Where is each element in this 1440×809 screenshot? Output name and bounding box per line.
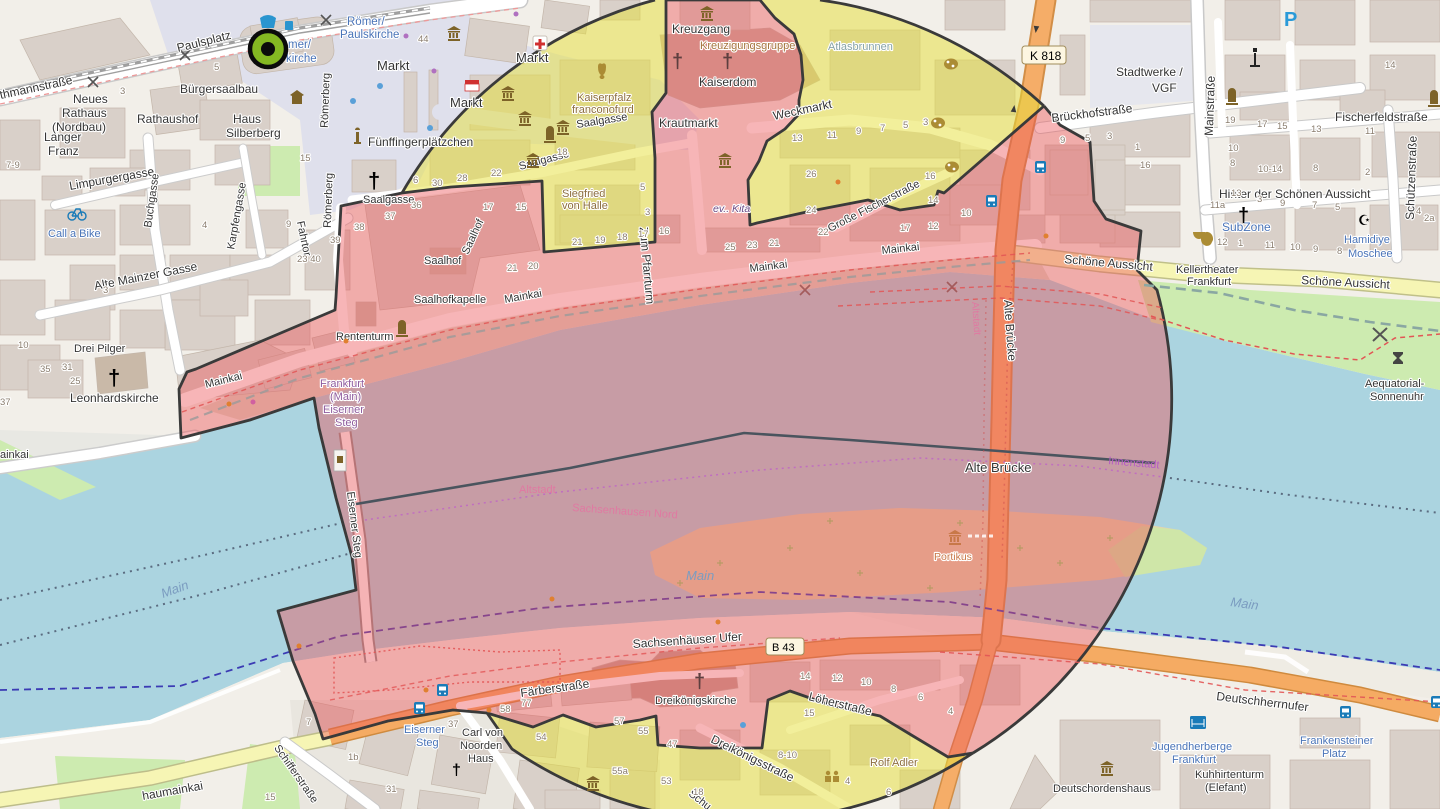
svg-text:20: 20	[528, 261, 539, 272]
svg-text:Römerberg: Römerberg	[322, 173, 336, 228]
svg-text:31: 31	[62, 362, 73, 373]
svg-text:2a: 2a	[1424, 213, 1435, 224]
svg-text:Markt: Markt	[516, 50, 549, 65]
svg-text:36: 36	[411, 200, 422, 211]
svg-text:Römerberg: Römerberg	[319, 73, 333, 128]
svg-text:3: 3	[120, 86, 125, 97]
svg-text:57: 57	[614, 716, 625, 727]
svg-text:Rathaushof: Rathaushof	[137, 112, 199, 126]
svg-text:12: 12	[1217, 237, 1228, 248]
svg-text:8: 8	[1337, 246, 1342, 257]
svg-text:15: 15	[516, 202, 527, 213]
svg-text:3: 3	[1257, 194, 1262, 205]
svg-text:franconofurd: franconofurd	[572, 104, 634, 116]
svg-text:58: 58	[500, 704, 511, 715]
svg-text:Leonhardskirche: Leonhardskirche	[70, 391, 159, 405]
svg-text:10: 10	[861, 677, 872, 688]
svg-text:Markt: Markt	[377, 58, 410, 73]
svg-text:12: 12	[832, 673, 843, 684]
svg-text:10: 10	[1290, 242, 1301, 253]
svg-text:†: †	[694, 671, 705, 693]
svg-text:17: 17	[638, 229, 649, 240]
svg-text:30: 30	[432, 178, 443, 189]
svg-text:3: 3	[923, 117, 928, 128]
svg-text:(Main): (Main)	[330, 391, 361, 403]
svg-text:5: 5	[1085, 133, 1090, 144]
svg-text:19: 19	[1225, 115, 1236, 126]
svg-text:7: 7	[880, 123, 885, 134]
svg-text:Kuhhirtenturm: Kuhhirtenturm	[1195, 769, 1264, 781]
svg-text:6: 6	[918, 692, 923, 703]
svg-text:47: 47	[667, 739, 678, 750]
svg-text:P: P	[1284, 9, 1297, 31]
svg-text:38: 38	[354, 222, 365, 233]
svg-text:26: 26	[806, 169, 817, 180]
svg-text:Frankensteiner: Frankensteiner	[1300, 735, 1374, 747]
svg-text:B 43: B 43	[772, 642, 795, 654]
svg-text:Langer: Langer	[44, 130, 81, 144]
svg-text:Aequatorial-: Aequatorial-	[1365, 378, 1425, 390]
svg-text:3: 3	[1107, 131, 1112, 142]
svg-text:Haus: Haus	[233, 112, 261, 126]
svg-text:35: 35	[40, 364, 51, 375]
svg-text:1: 1	[1135, 142, 1140, 153]
svg-text:K 818: K 818	[1030, 49, 1062, 63]
svg-text:18: 18	[693, 787, 704, 798]
svg-text:(Elefant): (Elefant)	[1205, 782, 1247, 794]
svg-text:23 40: 23 40	[297, 254, 321, 265]
svg-text:16: 16	[659, 226, 670, 237]
svg-text:23: 23	[747, 240, 758, 251]
svg-text:6: 6	[413, 175, 418, 186]
svg-text:8-10: 8-10	[778, 750, 797, 761]
svg-text:Saalhof: Saalhof	[424, 255, 462, 267]
svg-text:Kaiserdom: Kaiserdom	[699, 75, 756, 89]
svg-text:19: 19	[595, 235, 606, 246]
svg-text:17: 17	[900, 223, 911, 234]
svg-text:28: 28	[457, 173, 468, 184]
svg-text:Bürgersaalbau: Bürgersaalbau	[180, 82, 258, 96]
svg-text:Moschee: Moschee	[1348, 248, 1393, 260]
svg-text:Sonnenuhr: Sonnenuhr	[1370, 391, 1424, 403]
svg-text:10: 10	[18, 340, 29, 351]
svg-text:Platz: Platz	[1322, 748, 1346, 760]
svg-text:†: †	[1238, 205, 1249, 227]
svg-text:17: 17	[1257, 119, 1268, 130]
svg-text:54: 54	[536, 732, 547, 743]
svg-text:†: †	[452, 762, 461, 779]
svg-text:17: 17	[483, 202, 494, 213]
svg-text:37: 37	[0, 397, 11, 408]
svg-text:18: 18	[617, 232, 628, 243]
svg-text:4: 4	[1416, 206, 1421, 217]
svg-text:Kellertheater: Kellertheater	[1176, 264, 1239, 276]
svg-text:2: 2	[1365, 167, 1370, 178]
svg-text:Markt: Markt	[450, 95, 483, 110]
svg-text:Eiserner: Eiserner	[404, 724, 445, 736]
svg-text:8: 8	[1313, 163, 1318, 174]
svg-text:Silberberg: Silberberg	[226, 126, 281, 140]
svg-text:☪: ☪	[1358, 212, 1371, 228]
svg-text:9: 9	[1280, 198, 1285, 209]
svg-text:Noorden: Noorden	[460, 740, 502, 752]
svg-text:Fischerfeldstraße: Fischerfeldstraße	[1335, 110, 1428, 124]
svg-text:kirche: kirche	[286, 53, 317, 65]
svg-text:9: 9	[1313, 244, 1318, 255]
svg-text:37: 37	[448, 719, 459, 730]
svg-text:37: 37	[385, 211, 396, 222]
svg-text:24: 24	[806, 205, 817, 216]
svg-text:Deutschordenshaus: Deutschordenshaus	[1053, 783, 1151, 795]
svg-text:15: 15	[1277, 121, 1288, 132]
svg-text:9: 9	[1060, 135, 1065, 146]
svg-text:9: 9	[856, 126, 861, 137]
svg-text:VGF: VGF	[1152, 81, 1177, 95]
svg-text:8: 8	[1230, 158, 1235, 169]
svg-text:9: 9	[286, 219, 291, 230]
svg-text:55: 55	[638, 726, 649, 737]
svg-text:Neues: Neues	[73, 92, 108, 106]
svg-text:5: 5	[903, 120, 908, 131]
svg-text:14: 14	[1385, 60, 1396, 71]
svg-text:11a: 11a	[1210, 200, 1226, 211]
svg-text:13: 13	[1231, 188, 1242, 199]
svg-text:ev.. Kita: ev.. Kita	[713, 203, 750, 215]
svg-text:Frankfurt: Frankfurt	[320, 378, 364, 390]
svg-text:Stadtwerke /: Stadtwerke /	[1116, 65, 1183, 79]
svg-text:4: 4	[202, 220, 207, 231]
svg-text:Call a Bike: Call a Bike	[48, 228, 101, 240]
svg-text:25: 25	[70, 376, 81, 387]
svg-text:5: 5	[640, 182, 645, 193]
svg-text:Frankfurt: Frankfurt	[1172, 754, 1216, 766]
svg-text:1b: 1b	[348, 752, 359, 763]
svg-text:12: 12	[928, 221, 939, 232]
svg-text:Paulskirche: Paulskirche	[340, 29, 399, 41]
svg-text:Rolf Adler: Rolf Adler	[870, 757, 918, 769]
svg-text:18: 18	[557, 147, 568, 158]
svg-text:16: 16	[925, 171, 936, 182]
svg-text:Drei Pilger: Drei Pilger	[74, 343, 126, 355]
svg-text:10: 10	[961, 208, 972, 219]
svg-text:53: 53	[661, 776, 672, 787]
svg-text:14: 14	[928, 195, 939, 206]
svg-text:†: †	[722, 51, 733, 73]
svg-text:22: 22	[491, 168, 502, 179]
svg-text:Franz: Franz	[48, 144, 79, 158]
svg-text:7: 7	[1312, 200, 1317, 211]
svg-text:Atlasbrunnen: Atlasbrunnen	[828, 41, 893, 53]
svg-text:Haus: Haus	[468, 753, 494, 765]
svg-text:15: 15	[300, 153, 311, 164]
svg-text:Eiserner: Eiserner	[323, 404, 364, 416]
svg-text:21: 21	[572, 237, 583, 248]
svg-text:Carl von: Carl von	[462, 727, 503, 739]
svg-text:5: 5	[214, 62, 219, 73]
svg-text:Rathaus: Rathaus	[62, 106, 107, 120]
svg-text:3: 3	[645, 207, 650, 218]
svg-text:7: 7	[306, 717, 311, 728]
svg-text:55a: 55a	[612, 766, 629, 777]
svg-text:Dreikönigskirche: Dreikönigskirche	[655, 695, 736, 707]
svg-text:Kreuzgang: Kreuzgang	[672, 22, 730, 36]
svg-text:22: 22	[818, 227, 829, 238]
svg-text:Kaiserpfalz: Kaiserpfalz	[577, 92, 631, 104]
svg-text:15: 15	[265, 792, 276, 803]
svg-text:Hinter der Schönen Aussicht: Hinter der Schönen Aussicht	[1219, 187, 1371, 201]
svg-text:1: 1	[1238, 238, 1243, 249]
svg-text:Fünffingerplätzchen: Fünffingerplätzchen	[368, 135, 473, 149]
svg-text:7-9: 7-9	[6, 160, 20, 171]
svg-text:14: 14	[800, 671, 811, 682]
svg-text:Hamidiye: Hamidiye	[1344, 234, 1390, 246]
svg-text:15: 15	[804, 708, 815, 719]
svg-text:11: 11	[1265, 240, 1275, 251]
svg-text:13: 13	[1311, 124, 1322, 135]
svg-text:Jugendherberge: Jugendherberge	[1152, 741, 1232, 753]
svg-text:Siegfried: Siegfried	[562, 188, 605, 200]
svg-text:11: 11	[827, 130, 837, 141]
svg-text:ainkai: ainkai	[0, 449, 29, 461]
svg-text:†: †	[108, 365, 120, 390]
svg-text:25: 25	[725, 242, 736, 253]
svg-text:†: †	[672, 51, 683, 73]
svg-text:Alte Brücke: Alte Brücke	[965, 460, 1031, 475]
svg-text:Steg: Steg	[416, 737, 439, 749]
svg-text:Main: Main	[686, 568, 714, 583]
svg-text:11: 11	[1365, 126, 1375, 137]
svg-text:Altstadt: Altstadt	[519, 484, 556, 496]
svg-text:†: †	[368, 168, 380, 193]
svg-text:31: 31	[386, 784, 397, 795]
svg-text:Saalhofkapelle: Saalhofkapelle	[414, 294, 486, 306]
svg-text:21: 21	[507, 263, 518, 274]
svg-text:21: 21	[769, 238, 780, 249]
svg-text:39: 39	[330, 235, 341, 246]
svg-text:4: 4	[845, 776, 850, 787]
svg-text:von Halle: von Halle	[562, 200, 608, 212]
svg-text:Altstadt: Altstadt	[969, 301, 982, 335]
svg-text:44: 44	[418, 34, 429, 45]
svg-text:13: 13	[792, 133, 803, 144]
svg-text:6: 6	[886, 787, 891, 798]
svg-text:5: 5	[1335, 202, 1340, 213]
svg-text:3: 3	[103, 285, 108, 296]
svg-text:Portikus: Portikus	[934, 551, 972, 563]
svg-text:4: 4	[948, 706, 953, 717]
svg-text:Römer/: Römer/	[347, 16, 386, 28]
svg-text:16: 16	[1140, 160, 1151, 171]
svg-text:mer/: mer/	[288, 39, 312, 51]
svg-text:Saalgasse: Saalgasse	[363, 194, 414, 206]
svg-text:10: 10	[1228, 143, 1239, 154]
svg-text:8: 8	[891, 684, 896, 695]
svg-text:10-14: 10-14	[1258, 164, 1282, 175]
svg-text:Steg: Steg	[335, 417, 358, 429]
svg-text:Mainstraße: Mainstraße	[1202, 75, 1218, 136]
svg-text:Krautmarkt: Krautmarkt	[659, 116, 718, 130]
svg-text:77: 77	[521, 698, 532, 709]
svg-text:Kreuzigungsgruppe: Kreuzigungsgruppe	[700, 40, 795, 52]
svg-text:Frankfurt: Frankfurt	[1187, 276, 1231, 288]
